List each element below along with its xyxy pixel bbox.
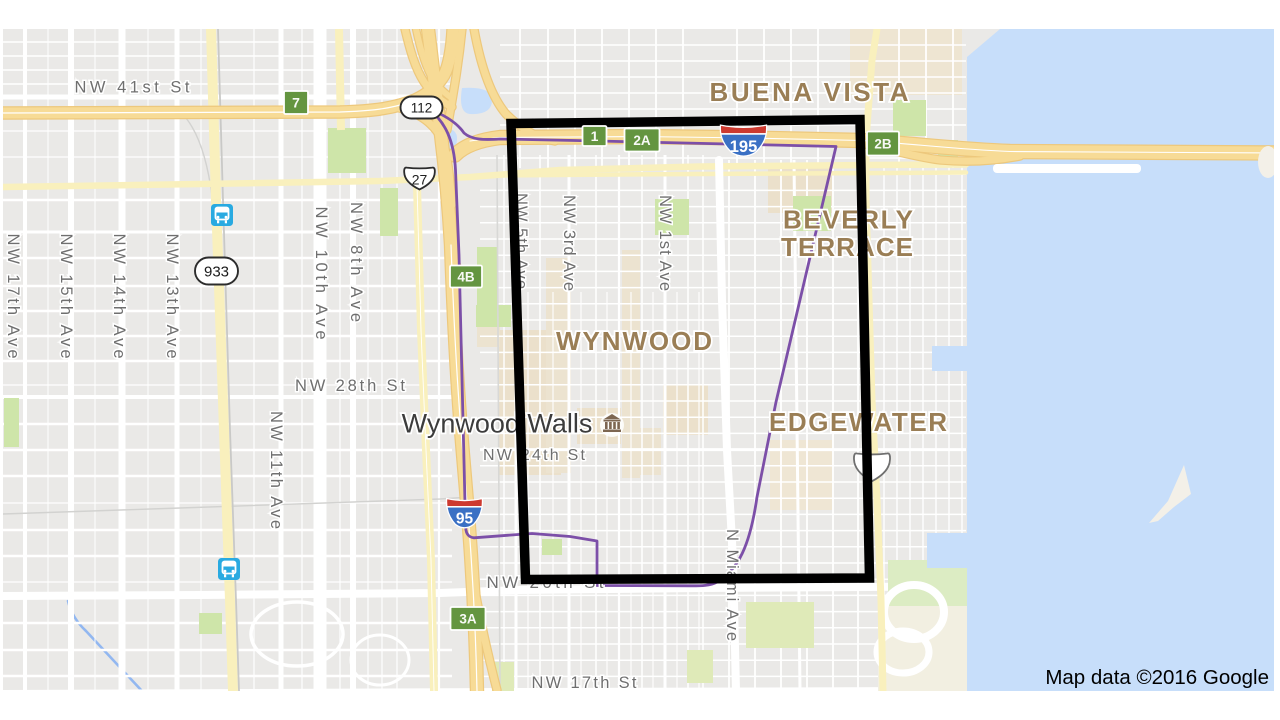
svg-text:195: 195: [730, 138, 758, 156]
svg-text:2A: 2A: [633, 133, 651, 148]
svg-text:WYNWOOD: WYNWOOD: [556, 326, 712, 356]
svg-text:3A: 3A: [459, 611, 477, 626]
svg-text:NW 24th St: NW 24th St: [483, 447, 586, 464]
svg-text:95: 95: [456, 511, 474, 528]
svg-text:NW 28th St: NW 28th St: [295, 377, 405, 395]
svg-text:7: 7: [292, 95, 300, 111]
svg-text:NW 8th Ave: NW 8th Ave: [347, 202, 365, 322]
svg-text:2B: 2B: [874, 136, 892, 151]
svg-text:EDGEWATER: EDGEWATER: [769, 407, 947, 437]
svg-text:Map data ©2016 Google: Map data ©2016 Google: [1045, 666, 1269, 689]
svg-text:112: 112: [411, 100, 433, 115]
svg-text:NW 17th St: NW 17th St: [532, 674, 637, 692]
svg-text:NW 1st Ave: NW 1st Ave: [656, 195, 674, 291]
svg-text:Wynwood Walls: Wynwood Walls: [402, 409, 593, 439]
svg-text:933: 933: [204, 263, 229, 280]
svg-text:TERRACE: TERRACE: [781, 232, 913, 262]
svg-text:NW 41st St: NW 41st St: [75, 79, 190, 97]
svg-text:1: 1: [591, 128, 599, 144]
svg-text:N Miami Ave: N Miami Ave: [723, 529, 741, 641]
svg-text:BUENA VISTA: BUENA VISTA: [710, 77, 909, 107]
svg-text:27: 27: [412, 171, 428, 187]
svg-text:4B: 4B: [457, 269, 475, 284]
svg-text:BEVERLY: BEVERLY: [783, 205, 913, 235]
svg-text:NW 3rd Ave: NW 3rd Ave: [560, 195, 578, 291]
